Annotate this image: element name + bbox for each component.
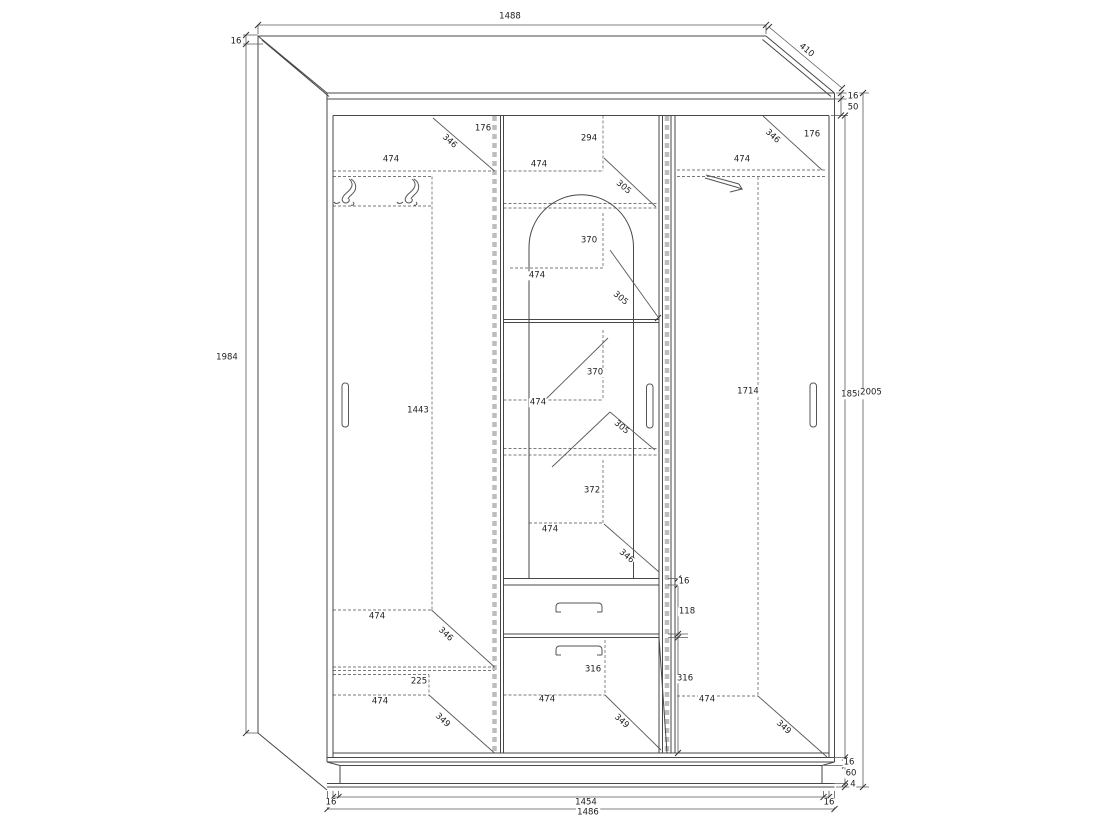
dimension-label: 346 — [616, 548, 636, 567]
dimension-label: 305 — [613, 179, 633, 198]
dimension-label: 474 — [530, 160, 548, 169]
dimension-label: 349 — [773, 718, 793, 737]
dimension-label: 305 — [611, 419, 631, 438]
dimension-label: 349 — [611, 712, 631, 731]
dimension-label: 474 — [538, 695, 556, 704]
dimension-label: 346 — [762, 127, 782, 146]
dimension-label: 176 — [474, 124, 492, 133]
dimension-label: 4 — [849, 780, 856, 789]
dimension-label: 2005 — [859, 388, 883, 397]
technical-drawing-canvas: 1488164101650198418582005176346474294474… — [0, 0, 1103, 827]
dimension-label: 225 — [410, 677, 428, 686]
dimension-label: 474 — [698, 695, 716, 704]
dimension-label: 16 — [843, 758, 856, 767]
dimension-label: 372 — [583, 486, 601, 495]
dimension-label: 16 — [230, 37, 243, 46]
dimension-label: 305 — [610, 290, 630, 309]
dimension-label: 50 — [847, 103, 860, 112]
dimension-label: 474 — [529, 398, 547, 407]
dimension-label: 346 — [435, 625, 455, 644]
dimension-label: 60 — [845, 769, 858, 778]
dimension-label: 370 — [586, 368, 604, 377]
dimension-label: 474 — [371, 697, 389, 706]
dimension-label: 16 — [823, 798, 836, 807]
dimension-label: 474 — [368, 612, 386, 621]
dimension-label: 1443 — [406, 406, 430, 415]
dimension-label: 474 — [528, 271, 546, 280]
dimension-label: 349 — [432, 711, 452, 730]
dimension-label: 1984 — [215, 353, 239, 362]
dimension-labels-layer: 1488164101650198418582005176346474294474… — [0, 0, 1103, 827]
dimension-label: 176 — [803, 130, 821, 139]
dimension-label: 410 — [796, 42, 816, 61]
dimension-label: 294 — [580, 134, 598, 143]
dimension-label: 370 — [580, 236, 598, 245]
dimension-label: 1488 — [498, 12, 522, 21]
dimension-label: 474 — [541, 525, 559, 534]
dimension-label: 316 — [584, 665, 602, 674]
dimension-label: 316 — [676, 674, 694, 683]
dimension-label: 346 — [439, 132, 459, 151]
dimension-label: 474 — [733, 155, 751, 164]
dimension-label: 1454 — [574, 798, 598, 807]
dimension-label: 16 — [678, 577, 691, 586]
dimension-label: 16 — [325, 798, 338, 807]
dimension-label: 1486 — [576, 808, 600, 817]
dimension-label: 1714 — [736, 387, 760, 396]
dimension-label: 16 — [847, 92, 860, 101]
dimension-label: 474 — [382, 155, 400, 164]
dimension-label: 118 — [678, 607, 696, 616]
